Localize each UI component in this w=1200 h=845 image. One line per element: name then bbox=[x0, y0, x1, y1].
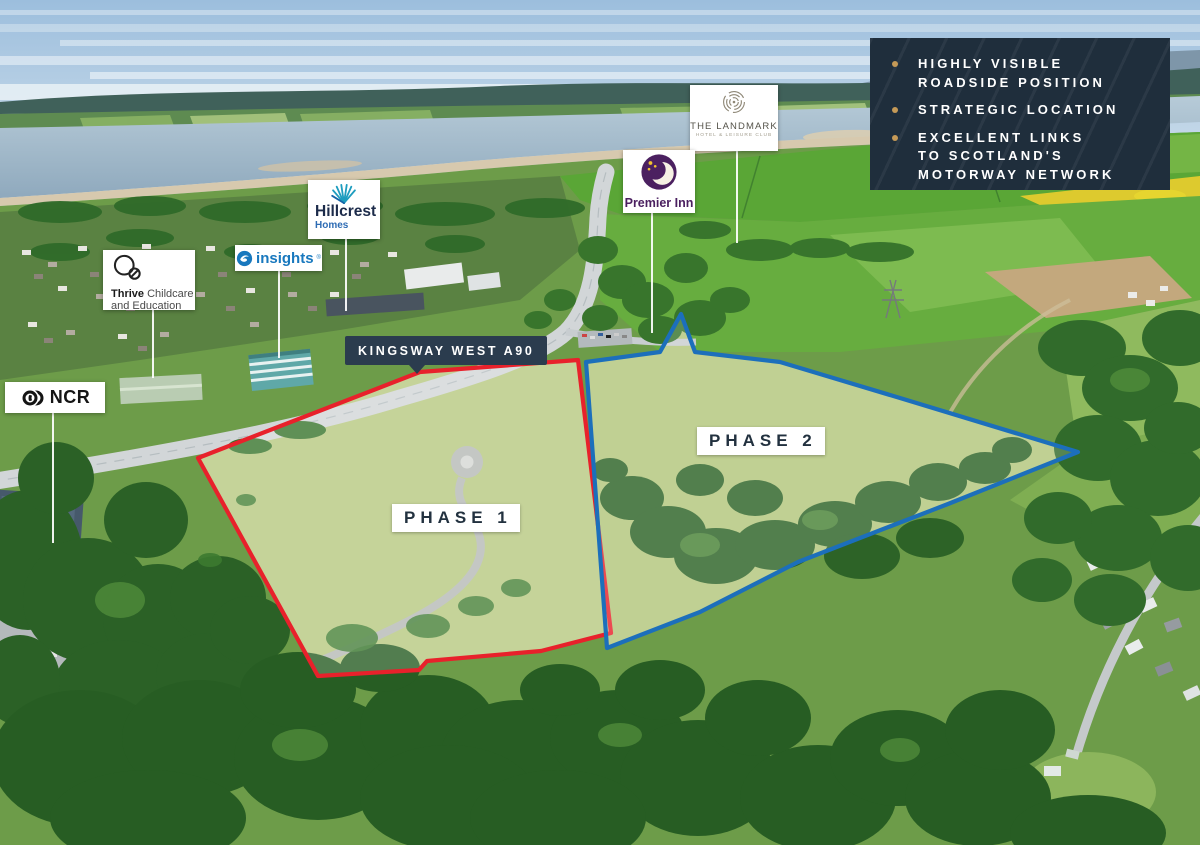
hillcrest-subtitle: Homes bbox=[308, 220, 380, 231]
feature-box: HIGHLY VISIBLE ROADSIDE POSITION STRATEG… bbox=[870, 38, 1170, 190]
landmark-title: THE LANDMARK bbox=[690, 121, 778, 132]
feature-line: HIGHLY VISIBLE bbox=[918, 56, 1063, 71]
ncr-logo-card: NCR bbox=[5, 382, 105, 413]
insights-swirl-icon bbox=[236, 250, 253, 267]
premier-inn-moon-icon bbox=[640, 153, 678, 191]
bullet-icon bbox=[892, 135, 898, 141]
hillcrest-title: Hillcrest bbox=[308, 204, 380, 219]
feature-line: MOTORWAY NETWORK bbox=[918, 167, 1114, 182]
feature-item: STRATEGIC LOCATION bbox=[892, 101, 1160, 120]
phase-2-label: PHASE 2 bbox=[697, 427, 825, 455]
insights-trademark: ® bbox=[317, 255, 321, 261]
insights-leader-line bbox=[278, 270, 280, 358]
hillcrest-logo-card: Hillcrest Homes bbox=[308, 180, 380, 239]
feature-line: ROADSIDE POSITION bbox=[918, 75, 1105, 90]
aerial-site-image: HIGHLY VISIBLE ROADSIDE POSITION STRATEG… bbox=[0, 0, 1200, 845]
feature-line: STRATEGIC LOCATION bbox=[918, 102, 1118, 117]
landmark-logo-card: THE LANDMARK HOTEL & LEISURE CLUB bbox=[690, 85, 778, 151]
landmark-subtitle: HOTEL & LEISURE CLUB bbox=[690, 133, 778, 138]
road-label-text: KINGSWAY WEST A90 bbox=[358, 344, 534, 358]
ncr-label: NCR bbox=[50, 387, 91, 408]
ncr-rings-icon bbox=[20, 387, 46, 409]
thrive-line1: Thrive Childcare bbox=[111, 288, 195, 300]
bullet-icon bbox=[892, 107, 898, 113]
premier-inn-leader-line bbox=[651, 210, 653, 333]
landmark-maze-icon bbox=[721, 89, 747, 115]
thrive-circles-icon bbox=[111, 254, 145, 282]
feature-item: HIGHLY VISIBLE ROADSIDE POSITION bbox=[892, 55, 1160, 92]
thrive-leader-line bbox=[152, 310, 154, 378]
insights-logo-card: insights ® bbox=[235, 245, 322, 271]
ncr-leader-line bbox=[52, 413, 54, 543]
feature-line: EXCELLENT LINKS bbox=[918, 130, 1084, 145]
feature-item: EXCELLENT LINKS TO SCOTLAND'S MOTORWAY N… bbox=[892, 129, 1160, 185]
insights-label: insights bbox=[256, 250, 314, 267]
road-label: KINGSWAY WEST A90 bbox=[345, 336, 547, 365]
thrive-line2: and Education bbox=[111, 300, 195, 312]
premier-inn-label: Premier Inn bbox=[623, 196, 695, 210]
thrive-building bbox=[119, 374, 202, 404]
landmark-leader-line bbox=[736, 147, 738, 243]
hillcrest-fan-icon bbox=[329, 184, 359, 204]
phase-1-label: PHASE 1 bbox=[392, 504, 520, 532]
hillcrest-leader-line bbox=[345, 235, 347, 311]
road-label-pointer bbox=[409, 365, 425, 374]
bullet-icon bbox=[892, 61, 898, 67]
thrive-logo-card: Thrive Childcare and Education bbox=[103, 250, 195, 310]
feature-line: TO SCOTLAND'S bbox=[918, 148, 1064, 163]
premier-inn-logo-card: Premier Inn bbox=[623, 150, 695, 213]
insights-building bbox=[248, 349, 313, 391]
